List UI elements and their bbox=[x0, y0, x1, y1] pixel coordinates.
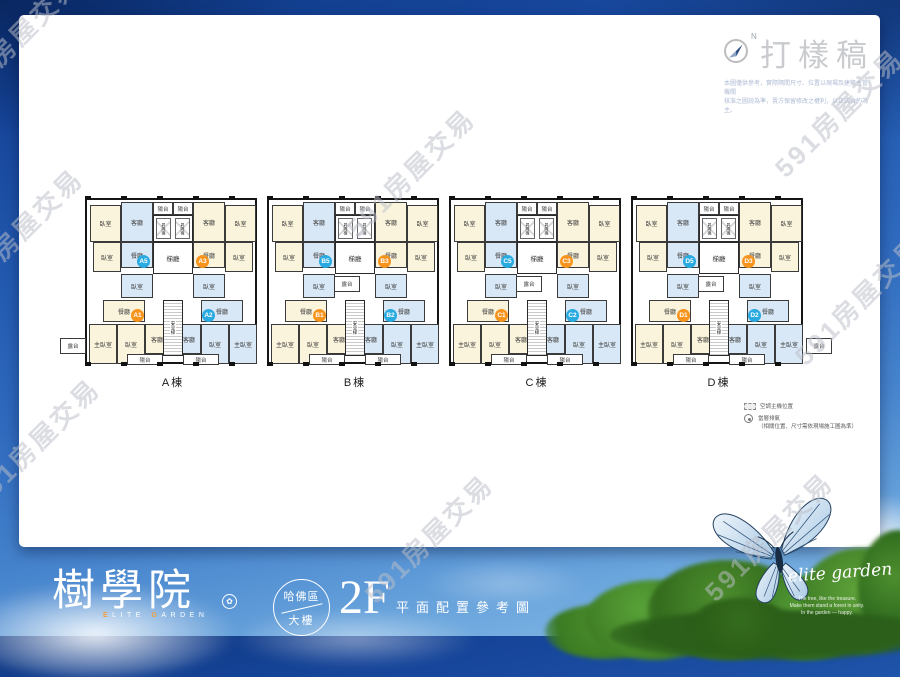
proof-disclaimer: 本圖僅供參考，實際隔間尺寸、位置以現場及建築主管機關 核准之圖說為準，賣方保留修… bbox=[724, 80, 870, 116]
proof-disclaimer-line2: 核准之圖說為準，賣方保留修改之權利，以正式合約為主。 bbox=[724, 98, 870, 116]
room-主臥室: 主臥室 bbox=[593, 324, 621, 364]
room-陽台: 陽台 bbox=[183, 354, 219, 365]
room-臥室: 臥室 bbox=[589, 205, 620, 242]
legend-vent-note: （相關位置、尺寸需依現場施工圖為準） bbox=[758, 424, 857, 430]
emergency-stair: 安全梯 bbox=[527, 300, 547, 356]
project-logo-en: ELITE GARDEN bbox=[103, 612, 208, 619]
room-陽台: 陽台 bbox=[517, 202, 537, 215]
elevator-car-icon: 昇降機 bbox=[175, 218, 190, 239]
room-陽台: 陽台 bbox=[729, 354, 765, 365]
floor-number: 2F bbox=[339, 570, 390, 625]
zone-badge: 哈佛區 大樓 bbox=[273, 579, 330, 636]
logo-seal-icon: ✿ bbox=[222, 594, 237, 609]
building-label-D棟: D棟 bbox=[633, 374, 805, 390]
proof-disclaimer-line1: 本圖僅供參考，實際隔間尺寸、位置以現場及建築主管機關 bbox=[724, 80, 870, 98]
unit-badge-B2: B2 bbox=[384, 309, 397, 322]
room-陽台: 陽台 bbox=[537, 202, 557, 215]
script-subtext-line: In the garden — happy. bbox=[762, 610, 892, 617]
room-臥室: 臥室 bbox=[121, 274, 153, 298]
terrace: 露台 bbox=[334, 276, 360, 292]
room-臥室: 臥室 bbox=[225, 242, 253, 272]
room-臥室: 臥室 bbox=[407, 205, 438, 242]
legend-item-vent: 當層排氣 （相關位置、尺寸需依現場施工圖為準） bbox=[744, 414, 857, 430]
room-客廳: 客廳 bbox=[485, 202, 517, 242]
script-subtext-line: Make them stand a forest in unity. bbox=[762, 603, 892, 610]
emergency-stair: 安全梯 bbox=[709, 300, 729, 356]
room-主臥室: 主臥室 bbox=[635, 324, 663, 364]
unit-badge-D2: D2 bbox=[748, 309, 761, 322]
room-主臥室: 主臥室 bbox=[89, 324, 117, 364]
unit-badge-B1: B1 bbox=[313, 309, 326, 322]
room-臥室: 臥室 bbox=[771, 205, 802, 242]
unit-badge-C2: C2 bbox=[566, 309, 579, 322]
room-臥室: 臥室 bbox=[193, 274, 225, 298]
unit-badge-D1: D1 bbox=[677, 309, 690, 322]
script-subtext-line: The tree, like the treasure. bbox=[762, 596, 892, 603]
compass-north-label: N bbox=[751, 32, 757, 41]
elevator-car-icon: 昇降機 bbox=[539, 218, 554, 239]
vent-circle-icon bbox=[744, 414, 753, 423]
room-陽台: 陽台 bbox=[719, 202, 739, 215]
room-臥室: 臥室 bbox=[771, 242, 799, 272]
proof-sheet-page: { "watermark": { "text": "591房屋交易", "pos… bbox=[0, 0, 900, 636]
room-陽台: 陽台 bbox=[673, 354, 709, 365]
room-臥室: 臥室 bbox=[589, 242, 617, 272]
room-客廳: 客廳 bbox=[739, 202, 771, 242]
unit-badge-A2: A2 bbox=[202, 309, 215, 322]
room-臥室: 臥室 bbox=[739, 274, 771, 298]
room-臥室: 臥室 bbox=[485, 274, 517, 298]
room-臥室: 臥室 bbox=[639, 242, 667, 272]
unit-badge-C5: C5 bbox=[501, 255, 514, 268]
emergency-stair: 安全梯 bbox=[163, 300, 183, 356]
unit-badge-A1: A1 bbox=[131, 309, 144, 322]
room-臥室: 臥室 bbox=[667, 274, 699, 298]
unit-badge-B5: B5 bbox=[319, 255, 332, 268]
terrace: 露台 bbox=[806, 338, 832, 354]
building-label-A棟: A棟 bbox=[87, 374, 259, 390]
elevator-shaft: 昇降機昇降機 bbox=[699, 215, 739, 242]
room-陽台: 陽台 bbox=[365, 354, 401, 365]
dashed-rect-icon bbox=[744, 403, 756, 410]
unit-badge-D3: D3 bbox=[742, 255, 755, 268]
legend-vent-text: 當層排氣 bbox=[758, 416, 780, 422]
room-臥室: 臥室 bbox=[375, 274, 407, 298]
room-陽台: 陽台 bbox=[699, 202, 719, 215]
room-主臥室: 主臥室 bbox=[453, 324, 481, 364]
zone-badge-top: 哈佛區 bbox=[274, 588, 329, 604]
room-主臥室: 主臥室 bbox=[271, 324, 299, 364]
elevator-shaft: 昇降機昇降機 bbox=[153, 215, 193, 242]
room-臥室: 臥室 bbox=[557, 274, 589, 298]
emergency-stair: 安全梯 bbox=[345, 300, 365, 356]
project-logo: 樹學院 bbox=[52, 556, 196, 618]
room-主臥室: 主臥室 bbox=[411, 324, 439, 364]
room-臥室: 臥室 bbox=[457, 242, 485, 272]
room-陽台: 陽台 bbox=[127, 354, 163, 365]
plan-caption: 平面配置參考圖 bbox=[396, 597, 536, 616]
room-陽台: 陽台 bbox=[153, 202, 173, 215]
room-臥室: 臥室 bbox=[407, 242, 435, 272]
proof-title: 打樣稿 bbox=[760, 30, 874, 75]
elevator-car-icon: 昇降機 bbox=[156, 218, 171, 239]
elevator-car-icon: 昇降機 bbox=[721, 218, 736, 239]
room-主臥室: 主臥室 bbox=[229, 324, 257, 364]
elevator-hall: 梯廳 bbox=[335, 242, 375, 274]
elevator-shaft: 昇降機昇降機 bbox=[335, 215, 375, 242]
elevator-car-icon: 昇降機 bbox=[357, 218, 372, 239]
unit-badge-B3: B3 bbox=[378, 255, 391, 268]
unit-badge-A3: A3 bbox=[196, 255, 209, 268]
zone-badge-bottom: 大樓 bbox=[274, 612, 329, 628]
room-臥室: 臥室 bbox=[636, 205, 667, 242]
floorplan-legend: 空調主機位置 當層排氣 （相關位置、尺寸需依現場施工圖為準） bbox=[744, 402, 857, 434]
terrace: 露台 bbox=[698, 276, 724, 292]
room-客廳: 客廳 bbox=[121, 202, 153, 242]
room-客廳: 客廳 bbox=[557, 202, 589, 242]
legend-item-ac: 空調主機位置 bbox=[744, 402, 857, 410]
room-陽台: 陽台 bbox=[309, 354, 345, 365]
elevator-car-icon: 昇降機 bbox=[520, 218, 535, 239]
legend-item-vent-label: 當層排氣 （相關位置、尺寸需依現場施工圖為準） bbox=[758, 414, 857, 430]
room-客廳: 客廳 bbox=[303, 202, 335, 242]
room-陽台: 陽台 bbox=[173, 202, 193, 215]
unit-badge-A5: A5 bbox=[137, 255, 150, 268]
room-客廳: 客廳 bbox=[193, 202, 225, 242]
room-陽台: 陽台 bbox=[335, 202, 355, 215]
room-臥室: 臥室 bbox=[225, 205, 256, 242]
building-label-B棟: B棟 bbox=[269, 374, 441, 390]
elevator-hall: 梯廳 bbox=[153, 242, 193, 274]
compass-icon: N bbox=[723, 38, 749, 69]
room-客廳: 客廳 bbox=[375, 202, 407, 242]
room-陽台: 陽台 bbox=[355, 202, 375, 215]
script-subtext: The tree, like the treasure. Make them s… bbox=[762, 596, 892, 617]
elevator-hall: 梯廳 bbox=[699, 242, 739, 274]
floorplan-area: 臥室客廳餐廳臥室陽台陽台客廳臥室餐廳臥室臥室臥室餐廳餐廳主臥室臥室客廳客廳臥室主… bbox=[85, 198, 807, 398]
room-臥室: 臥室 bbox=[303, 274, 335, 298]
room-臥室: 臥室 bbox=[90, 205, 121, 242]
unit-badge-C3: C3 bbox=[560, 255, 573, 268]
elevator-hall: 梯廳 bbox=[517, 242, 557, 274]
elevator-car-icon: 昇降機 bbox=[702, 218, 717, 239]
room-臥室: 臥室 bbox=[272, 205, 303, 242]
room-臥室: 臥室 bbox=[454, 205, 485, 242]
room-陽台: 陽台 bbox=[491, 354, 527, 365]
unit-badge-C1: C1 bbox=[495, 309, 508, 322]
terrace: 露台 bbox=[60, 338, 86, 354]
room-陽台: 陽台 bbox=[547, 354, 583, 365]
elevator-shaft: 昇降機昇降機 bbox=[517, 215, 557, 242]
legend-item-ac-label: 空調主機位置 bbox=[760, 402, 793, 410]
room-客廳: 客廳 bbox=[667, 202, 699, 242]
building-label-C棟: C棟 bbox=[451, 374, 623, 390]
room-臥室: 臥室 bbox=[93, 242, 121, 272]
room-主臥室: 主臥室 bbox=[775, 324, 803, 364]
terrace: 露台 bbox=[516, 276, 542, 292]
unit-badge-D5: D5 bbox=[683, 255, 696, 268]
building-A棟: 臥室客廳餐廳臥室陽台陽台客廳臥室餐廳臥室臥室臥室餐廳餐廳主臥室臥室客廳客廳臥室主… bbox=[85, 198, 257, 364]
elevator-car-icon: 昇降機 bbox=[338, 218, 353, 239]
room-臥室: 臥室 bbox=[275, 242, 303, 272]
